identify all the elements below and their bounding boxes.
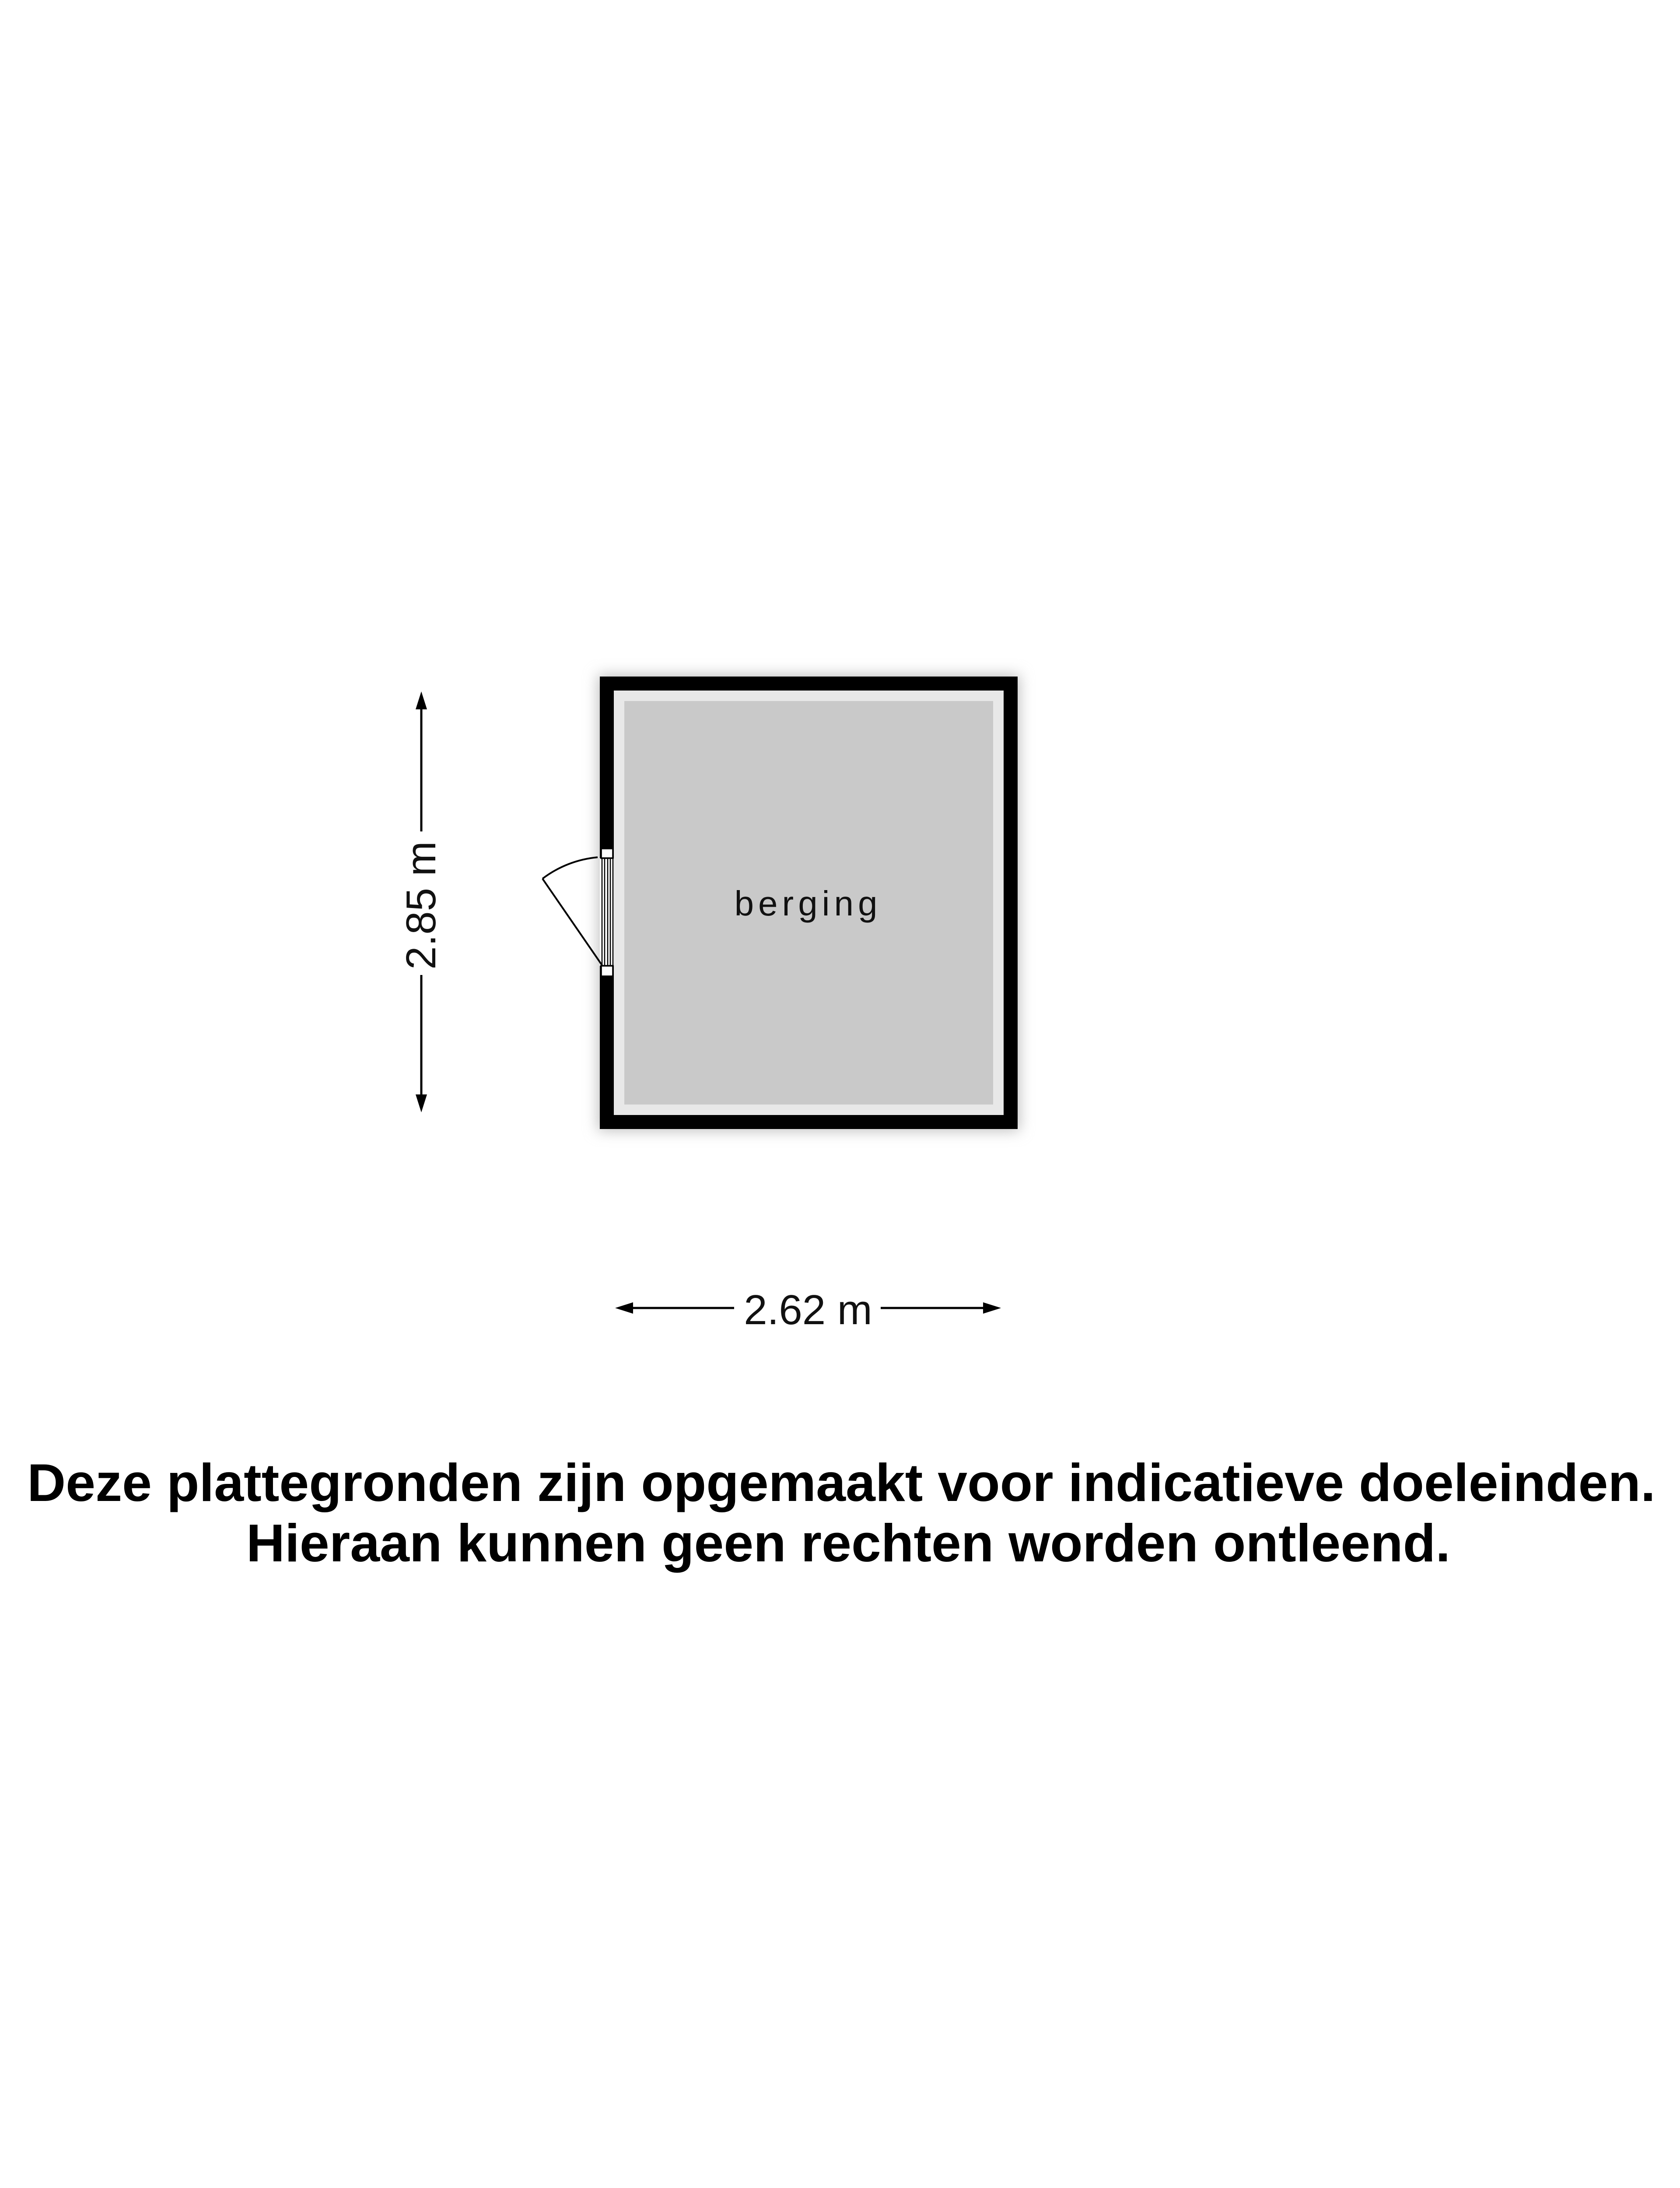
svg-text:2.85 m: 2.85 m (398, 841, 444, 969)
svg-text:berging: berging (735, 884, 882, 923)
svg-text:2.62 m: 2.62 m (744, 1287, 872, 1333)
svg-text:Deze plattegronden zijn opgema: Deze plattegronden zijn opgemaakt voor i… (27, 1453, 1655, 1512)
svg-text:Hieraan kunnen geen rechten wo: Hieraan kunnen geen rechten worden ontle… (246, 1513, 1450, 1573)
